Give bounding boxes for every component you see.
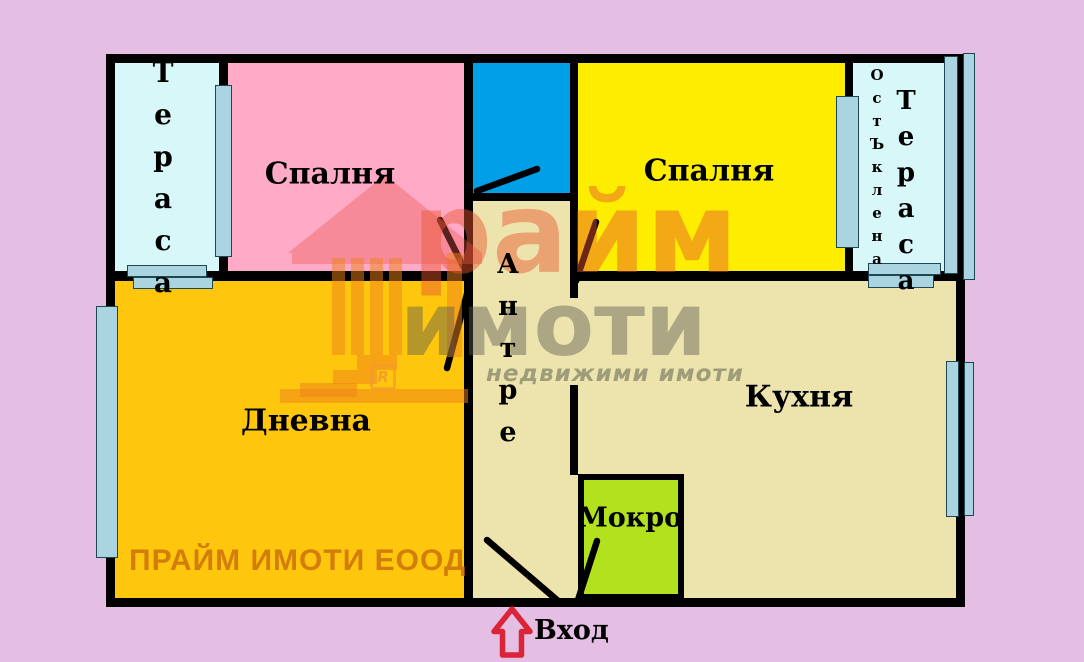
label-living-room: Дневна [241, 404, 371, 439]
label-terrace-left: Тераса [153, 56, 174, 299]
entrance-arrow-icon [488, 602, 538, 662]
label-hallway: Антре [497, 249, 519, 448]
company-name-overlay: ПРАЙМ ИМОТИ ЕООД [129, 544, 466, 578]
label-bedroom-1: Спалня [265, 157, 396, 192]
label-bedroom-2: Спалня [644, 154, 775, 189]
floor-plan: R райм имоти недвижими имоти Спалня Спал… [0, 0, 1084, 662]
label-terrace-right: Тераса [896, 86, 915, 296]
label-glazed-qualifier: ОстЪклена [870, 66, 884, 268]
label-kitchen: Кухня [745, 380, 854, 415]
label-wet-room: Мокро [578, 503, 682, 534]
label-entrance: Вход [534, 615, 609, 646]
